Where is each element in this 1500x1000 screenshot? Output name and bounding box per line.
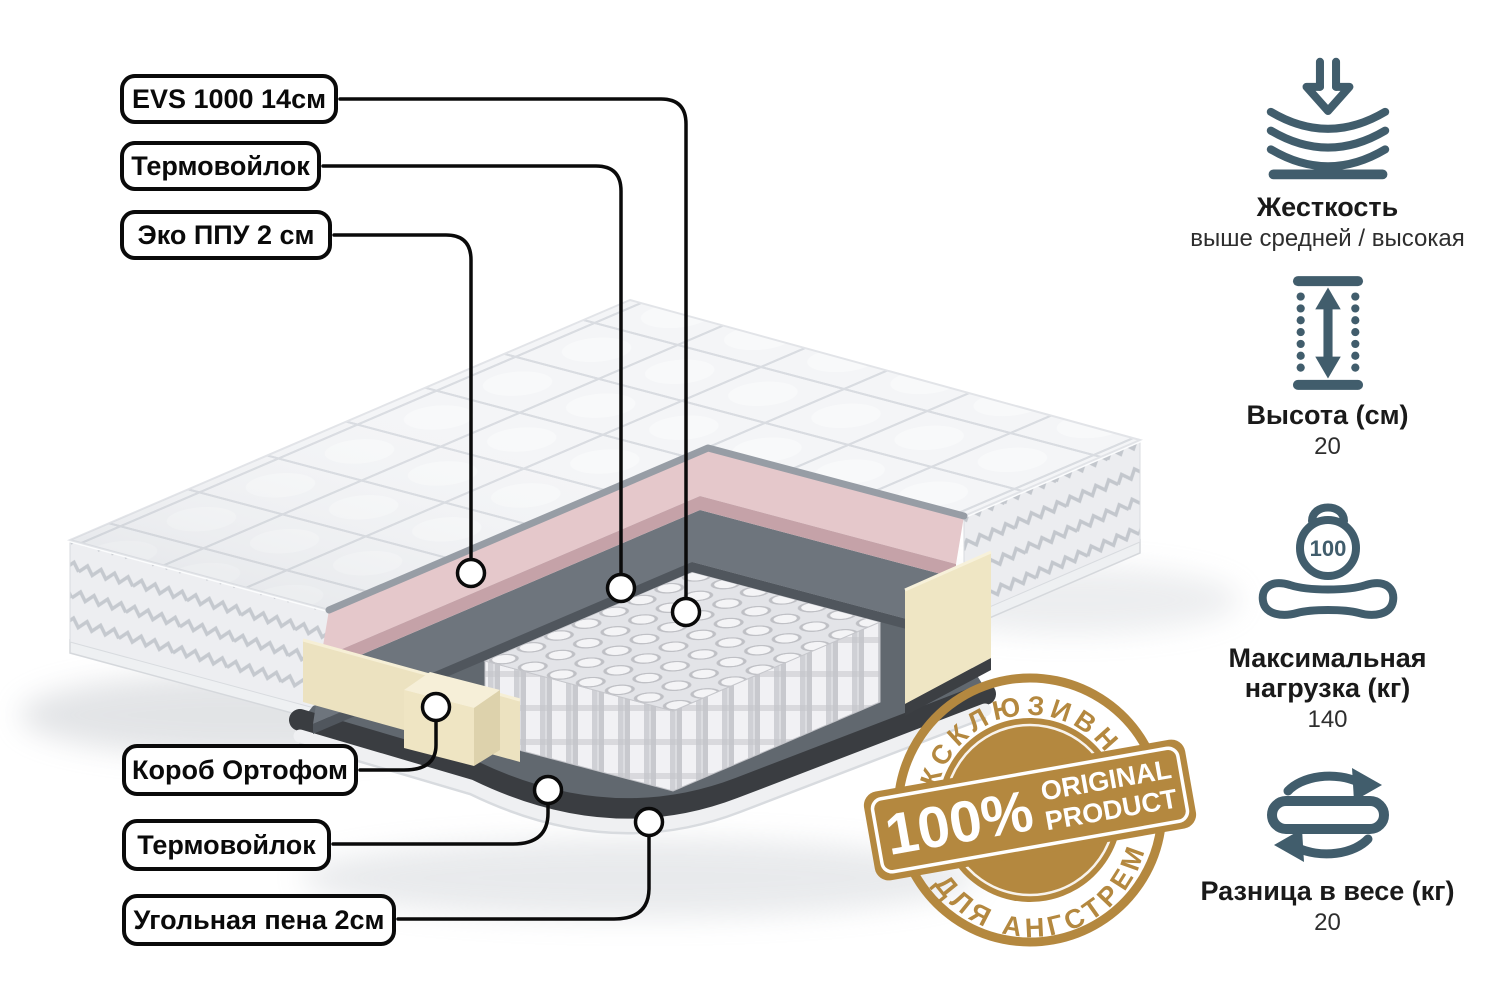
feature-max-load: 100 Максимальная нагрузка (кг) 140 xyxy=(1135,487,1500,734)
callout-dot-thermo-bottom xyxy=(535,777,562,804)
callout-text: Термовойлок xyxy=(131,151,310,182)
callout-dot-thermo-top xyxy=(608,575,635,602)
feature-value: выше средней / высокая xyxy=(1135,225,1500,253)
feature-label: Максимальная нагрузка (кг) xyxy=(1188,643,1468,703)
rotate-flip-icon xyxy=(1243,760,1413,870)
callout-dot-korob xyxy=(423,694,450,721)
callout-label-eko: Эко ППУ 2 см xyxy=(120,210,332,260)
callout-label-ugol: Угольная пена 2см xyxy=(122,894,396,946)
callout-label-thermo-top: Термовойлок xyxy=(120,141,321,191)
feature-height: Высота (см) 20 xyxy=(1135,272,1500,461)
callout-label-korob: Короб Ортофом xyxy=(122,744,358,796)
callout-dot-ugol xyxy=(636,809,663,836)
callout-dot-evs xyxy=(673,599,700,626)
callout-text: Эко ППУ 2 см xyxy=(138,220,315,251)
callout-label-evs: EVS 1000 14см xyxy=(120,74,338,124)
callout-text: EVS 1000 14см xyxy=(132,84,326,115)
callout-text: Угольная пена 2см xyxy=(134,905,385,936)
feature-value: 20 xyxy=(1135,909,1500,937)
compression-arrow-icon xyxy=(1242,52,1414,186)
callout-text: Термовойлок xyxy=(137,830,316,861)
feature-label: Высота (см) xyxy=(1188,400,1468,430)
feature-weight-diff: Разница в весе (кг) 20 xyxy=(1135,760,1500,937)
callout-dot-eko xyxy=(458,560,485,587)
feature-label: Жесткость xyxy=(1188,192,1468,222)
callout-text: Короб Ортофом xyxy=(132,755,348,786)
feature-value: 140 xyxy=(1135,706,1500,734)
height-arrows-icon xyxy=(1263,272,1393,394)
callout-label-thermo-bottom: Термовойлок xyxy=(122,819,331,871)
feature-firmness: Жесткость выше средней / высокая xyxy=(1135,52,1500,253)
feature-value: 20 xyxy=(1135,433,1500,461)
feature-label: Разница в весе (кг) xyxy=(1188,876,1468,906)
kettlebell-weight-text: 100 xyxy=(1309,536,1346,561)
kettlebell-icon: 100 xyxy=(1246,487,1410,637)
